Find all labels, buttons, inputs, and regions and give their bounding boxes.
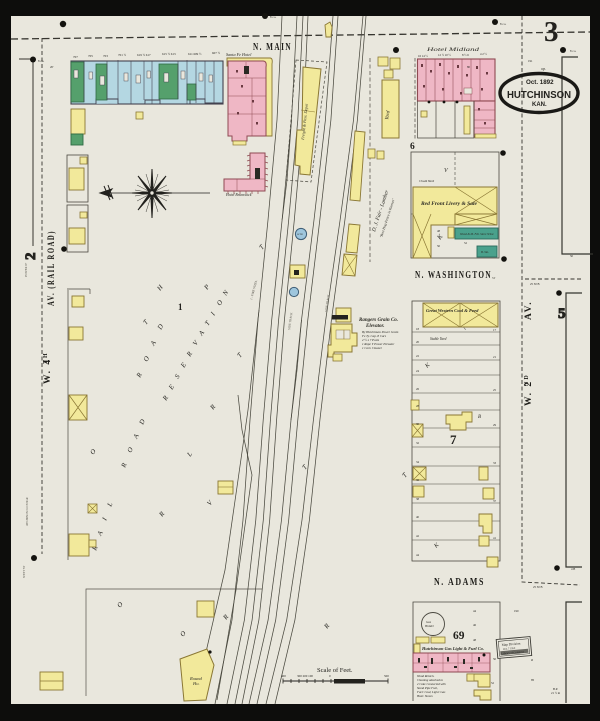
- svg-text:AV.: AV.: [524, 300, 534, 320]
- svg-text:12 ½ 10 ½: 12 ½ 10 ½: [438, 53, 452, 57]
- svg-text:Great Western Coal & Feed: Great Western Coal & Feed: [426, 308, 479, 313]
- svg-text:48: 48: [473, 638, 477, 642]
- svg-text:AV. (RAIL ROAD): AV. (RAIL ROAD): [46, 230, 56, 306]
- svg-text:25: 25: [493, 388, 497, 392]
- svg-text:26: 26: [416, 387, 420, 391]
- svg-text:6: 6: [410, 142, 415, 152]
- svg-text:Wood & M. Fdr. Store Whse: Wood & M. Fdr. Store Whse: [460, 232, 494, 236]
- svg-text:a: a: [531, 657, 533, 662]
- svg-text:8 c.s.: 8 c.s.: [570, 49, 576, 53]
- svg-text:619 ½ 617: 619 ½ 617: [137, 53, 151, 57]
- svg-text:37: 37: [493, 499, 497, 503]
- svg-text:38: 38: [416, 497, 420, 501]
- svg-text:500: 500: [384, 674, 389, 678]
- svg-text:191: 191: [528, 59, 533, 63]
- svg-text:HUTCHINSON: HUTCHINSON: [507, 89, 571, 101]
- svg-text:44: 44: [416, 553, 420, 557]
- svg-text:ATCHISON CO ENGR: ATCHISON CO ENGR: [25, 497, 29, 526]
- svg-text:Stable Yard: Stable Yard: [430, 337, 447, 341]
- svg-text:B: B: [478, 415, 481, 420]
- svg-text:5: 5: [558, 306, 566, 322]
- svg-text:705: 705: [88, 54, 93, 58]
- svg-text:52: 52: [491, 681, 495, 685]
- svg-text:28: 28: [416, 404, 420, 408]
- svg-text:20: 20: [416, 340, 420, 344]
- svg-text:69: 69: [453, 630, 465, 642]
- svg-text:33: 33: [493, 461, 497, 465]
- svg-text:1 Corn Cleaner: 1 Corn Cleaner: [362, 346, 383, 350]
- svg-text:Red Front Livery & Sale: Red Front Livery & Sale: [420, 201, 477, 207]
- svg-text:50: 50: [493, 657, 497, 661]
- svg-text:25 50 B: 25 50 B: [533, 585, 543, 589]
- svg-text:N. ADAMS: N. ADAMS: [434, 577, 485, 588]
- svg-text:8 ½ 6: 8 ½ 6: [462, 53, 469, 57]
- svg-text:Elevator.: Elevator.: [365, 324, 384, 329]
- svg-text:18: 18: [416, 327, 420, 331]
- svg-text:Oct. 1892: Oct. 1892: [526, 79, 554, 86]
- svg-text:8 c.s.: 8 c.s.: [38, 59, 44, 63]
- svg-text:ST: ST: [492, 276, 496, 280]
- svg-text:30: 30: [416, 422, 420, 426]
- svg-text:34: 34: [416, 460, 420, 464]
- svg-text:POWER 87: POWER 87: [24, 262, 28, 277]
- svg-text:B. Sto.: B. Sto.: [481, 250, 489, 254]
- svg-text:op.: op.: [541, 66, 546, 71]
- svg-text:3: 3: [544, 16, 559, 48]
- svg-text:46: 46: [473, 623, 477, 627]
- svg-text:190: 190: [514, 609, 519, 613]
- svg-text:36: 36: [416, 478, 420, 482]
- svg-text:16 14 ½: 16 14 ½: [418, 54, 429, 58]
- svg-text:50: 50: [437, 244, 441, 248]
- svg-text:300 200 100: 300 200 100: [297, 674, 313, 678]
- svg-text:42: 42: [416, 534, 420, 538]
- svg-text:707: 707: [73, 55, 78, 59]
- svg-text:Chalk Yard: Chalk Yard: [419, 179, 434, 183]
- svg-text:50: 50: [570, 254, 574, 258]
- svg-text:400: 400: [281, 674, 286, 678]
- svg-text:21: 21: [493, 355, 497, 359]
- svg-text:4 2 ½: 4 2 ½: [480, 52, 488, 56]
- svg-text:21 ½ m: 21 ½ m: [551, 691, 561, 695]
- svg-text:2: 2: [23, 253, 39, 261]
- svg-text:Heat: Stoves: Heat: Stoves: [416, 694, 434, 698]
- svg-text:611 609 ½: 611 609 ½: [188, 52, 202, 56]
- svg-text:ND: ND: [524, 373, 530, 386]
- svg-text:25 50 B: 25 50 B: [530, 282, 540, 286]
- svg-text:7: 7: [450, 432, 457, 447]
- svg-text:8 c.s.: 8 c.s.: [500, 22, 506, 26]
- svg-text:TH: TH: [43, 351, 49, 364]
- svg-text:Holder: Holder: [424, 624, 435, 628]
- svg-text:Rangers Grain Co.: Rangers Grain Co.: [359, 318, 398, 323]
- svg-text:Hotel Brunswick: Hotel Brunswick: [225, 193, 252, 197]
- svg-text:40: 40: [416, 515, 420, 519]
- svg-text:41: 41: [493, 536, 497, 540]
- svg-text:615 ½ 613: 615 ½ 613: [162, 52, 176, 56]
- svg-text:20': 20': [50, 65, 54, 69]
- svg-text:607 ½: 607 ½: [212, 51, 221, 55]
- svg-text:48: 48: [437, 229, 441, 233]
- svg-text:29: 29: [493, 423, 497, 427]
- svg-text:1: 1: [178, 302, 183, 312]
- svg-text:4 B: 4 B: [571, 567, 575, 571]
- svg-text:52: 52: [464, 241, 468, 245]
- svg-text:WEST ST: WEST ST: [22, 565, 26, 578]
- svg-text:W.TK: W.TK: [297, 233, 303, 236]
- svg-text:8 c.s.: 8 c.s.: [270, 15, 276, 19]
- svg-text:N. WASHINGTON: N. WASHINGTON: [415, 270, 492, 281]
- svg-text:m: m: [531, 677, 534, 682]
- svg-text:N. MAIN: N. MAIN: [253, 42, 292, 53]
- svg-text:17: 17: [493, 328, 497, 332]
- svg-text:KAN.: KAN.: [532, 102, 547, 108]
- svg-text:44: 44: [473, 609, 477, 613]
- svg-text:Ho.: Ho.: [192, 681, 200, 686]
- svg-text:Hutchinson Gas Light & Fuel Co: Hutchinson Gas Light & Fuel Co.: [421, 646, 484, 651]
- svg-text:703: 703: [103, 54, 108, 58]
- svg-text:Scale of Feet.: Scale of Feet.: [317, 667, 353, 674]
- svg-text:701 ½: 701 ½: [118, 53, 127, 57]
- svg-text:32: 32: [416, 441, 420, 445]
- svg-text:Hotel Midland: Hotel Midland: [425, 48, 480, 53]
- svg-text:Santa Fe Hotel: Santa Fe Hotel: [226, 52, 252, 57]
- svg-text:22: 22: [416, 354, 420, 358]
- svg-text:80: 80: [467, 65, 471, 69]
- svg-text:24: 24: [416, 369, 420, 373]
